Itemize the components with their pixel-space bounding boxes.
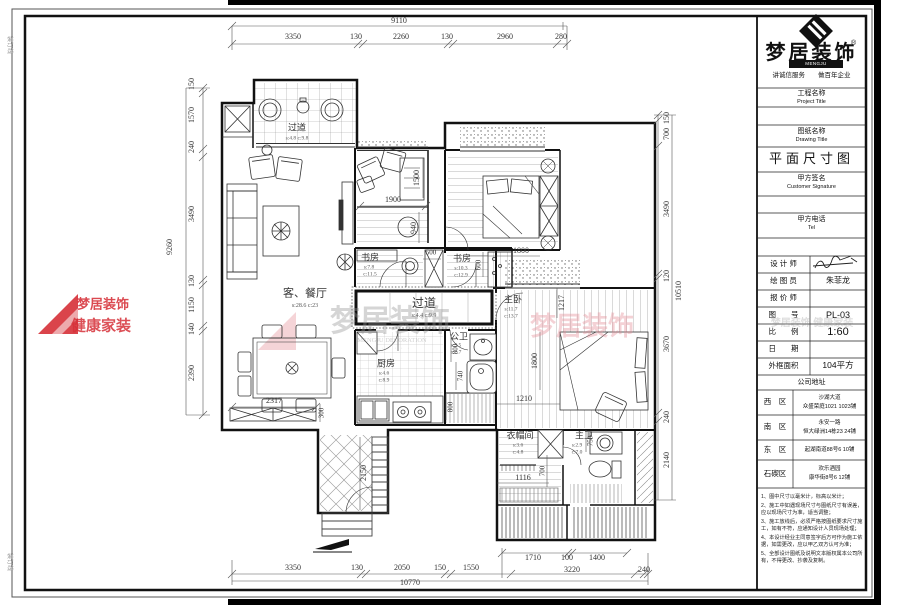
dim: 1710 [525,554,541,562]
room-label: 公卫 [450,333,468,342]
room-sub: s:10.3 [454,266,467,272]
dim: 2390 [188,365,196,381]
room-label: 书房 [453,255,471,264]
dim: 2960 [497,33,513,41]
dim: 3490 [663,201,671,217]
dim: 940 [410,222,418,234]
watermark-center-sub: MENGJU DECORATION [357,338,427,345]
dim: 3220 [564,566,580,574]
room-sub: c:12.9 [454,273,468,279]
room-label: 主卧 [504,296,522,305]
dim: 1800 [513,247,529,255]
room-sub: s:4.6 [379,371,390,377]
dim-left-overall: 9260 [166,239,174,255]
watermark-right-text: 梦居装饰 [530,314,634,340]
dim: 1570 [188,107,196,123]
dim: 130 [350,33,362,41]
dim: 130 [441,33,453,41]
dim: 140 [188,323,196,335]
watermark-titleblock: 梦居装饰 健康家装 [771,319,854,329]
dim-bottom-overall: 10770 [400,579,420,587]
dim: 120 [663,270,671,282]
room-sub: s:28.6 c:23 [292,303,318,309]
room-sub: s:4.8 c:9.8 [286,136,309,142]
dim: 3670 [663,336,671,352]
dim: 3350 [285,33,301,41]
room-sub: s:2.9 [572,443,583,449]
watermark-left-title: 梦居装饰 [77,298,129,311]
dim: 1116 [515,474,530,482]
room-sub: c:11.5 [363,272,376,278]
dim: 130 [351,564,363,572]
dim: 1400 [589,554,605,562]
dim: 1800 [531,353,539,369]
room-label: 主卫 [575,432,593,441]
room-sub: s:3.5 [451,343,462,349]
dim: 2150 [360,465,368,481]
dim: 3350 [285,564,301,572]
dim: 240 [638,566,650,574]
dim: 2140 [663,452,671,468]
plan-text-layer: 9110335013022601302960280171010014003350… [0,0,899,605]
room-sub: c:8.9 [379,378,390,384]
room-sub: c:4.8 [513,450,524,456]
dim: 240 [188,141,196,153]
dim: 1500 [413,170,421,186]
dim: 1150 [188,297,196,313]
dim: 3490 [188,206,196,222]
room-sub: c:7.0 [572,450,583,456]
dim: 240 [663,411,671,423]
room-sub: c:7.7 [451,350,462,356]
dim: 130 [188,275,196,287]
watermark-left-sub: 健康家装 [71,320,131,335]
watermark-center-text: 梦居装饰 [330,307,450,337]
room-sub: s:11.7 [504,307,517,313]
dim: 800 [448,402,455,413]
dim: 740 [458,371,465,382]
dim: 700 [663,128,671,140]
room-label: 衣帽间 [506,432,533,441]
dim: 300 [319,408,326,419]
dim: 1900 [385,196,401,204]
room-sub: s:7.8 [364,265,375,271]
dim: 150 [188,78,196,90]
dim: 1550 [463,564,479,572]
dim: 500 [426,250,437,257]
watermark-center-dots: · · · · · · [375,346,410,352]
dim: 2050 [394,564,410,572]
dim: 700 [540,466,547,477]
dim: 2317 [266,397,282,405]
dim-top-overall: 9110 [391,17,407,25]
room-label: 书房 [361,254,379,263]
dim: 600 [476,260,483,271]
room-label: 客、餐厅 [283,289,327,300]
dim: 150 [434,564,446,572]
dim: 150 [663,112,671,124]
dim: 1210 [516,395,532,403]
room-sub: c:13.7 [504,314,518,320]
binding-mark: 装订线 [6,553,12,571]
room-sub: s:3.6 [513,443,524,449]
binding-mark: 装订线 [6,36,12,54]
room-label: 厨房 [377,360,395,369]
dim: 100 [561,554,573,562]
dim: 280 [555,33,567,41]
room-label: 过道 [288,124,306,133]
dim: 1217 [558,295,566,311]
floor-plan-sheet: 梦居装饰 ® MENGJU DECORATION 讲诚信服务 做百年企业 工程名… [0,0,899,605]
dim: 2260 [393,33,409,41]
dim-right-overall: 10510 [675,281,683,301]
